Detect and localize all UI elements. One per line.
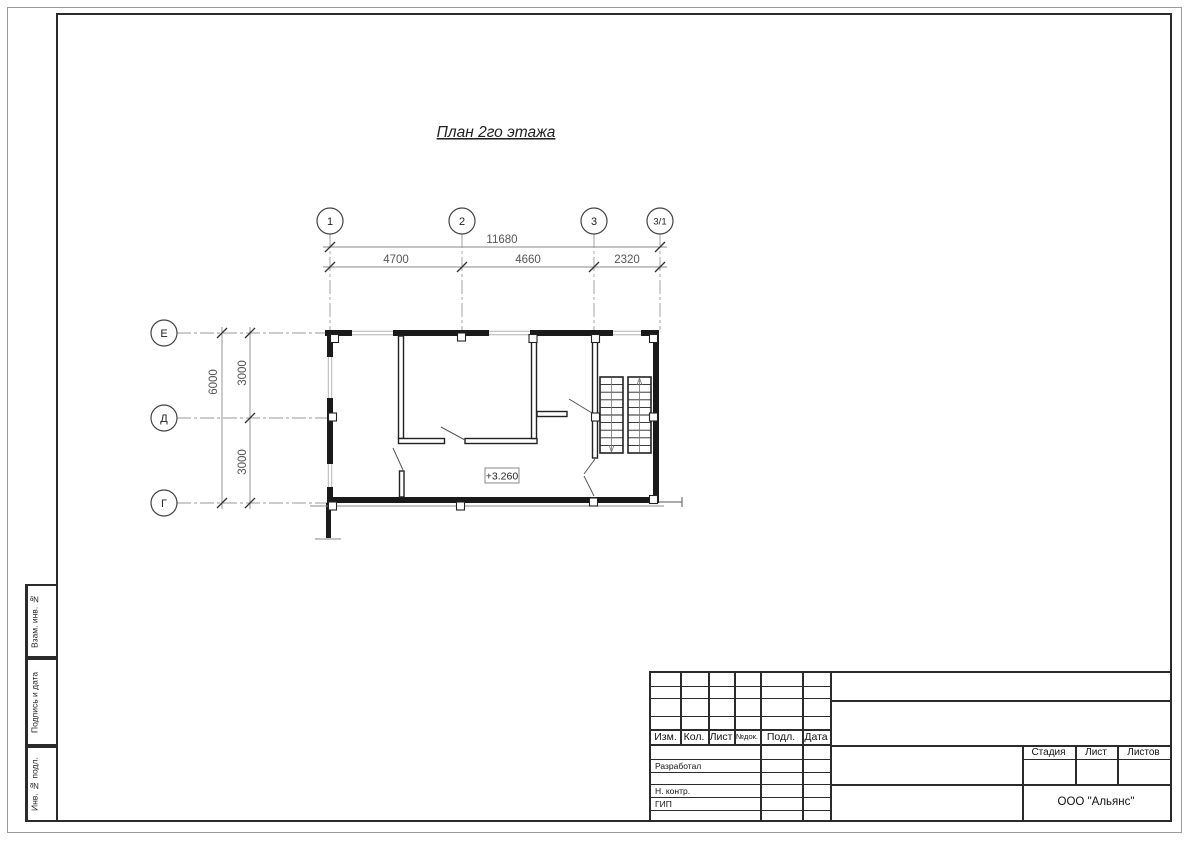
tb-row-razrabotal: Разработал bbox=[651, 759, 759, 772]
axis-label-2: 2 bbox=[459, 216, 465, 228]
lower-outline bbox=[310, 497, 682, 539]
axis-label-g: Г bbox=[161, 498, 167, 510]
dim-top-segment-3: 2320 bbox=[614, 254, 640, 266]
staircase bbox=[600, 377, 651, 453]
tb-col-ndok: №док. bbox=[734, 729, 760, 744]
tb-col-kol: Кол. bbox=[680, 729, 708, 744]
tb-line bbox=[1022, 759, 1170, 760]
sidebar-label-vzam: Взам. инв. № bbox=[27, 586, 41, 656]
dim-left-segment-1: 3000 bbox=[237, 360, 249, 386]
elevation-value: +3.260 bbox=[486, 471, 519, 483]
tb-sheets-label: Листов bbox=[1117, 745, 1170, 759]
dim-top-segment-2: 4660 bbox=[515, 254, 541, 266]
tb-sheet-label: Лист bbox=[1075, 745, 1117, 759]
tb-col-izm: Изм. bbox=[651, 729, 680, 744]
tb-row-gip: ГИП bbox=[651, 797, 759, 810]
drawing-sheet: План 2го этажа bbox=[0, 0, 1191, 842]
title-block: Изм. Кол. Лист №док. Подл. Дата Разработ… bbox=[649, 671, 1172, 822]
axis-label-d: Д bbox=[160, 413, 168, 425]
sidebar-box-podpis: Подпись и дата bbox=[25, 658, 58, 746]
dim-top-segment-1: 4700 bbox=[383, 254, 409, 266]
tb-line bbox=[651, 772, 831, 773]
axis-lines bbox=[177, 234, 660, 503]
drawing-title: План 2го этажа bbox=[437, 124, 556, 141]
tb-col-list: Лист bbox=[708, 729, 734, 744]
tb-line bbox=[651, 744, 831, 746]
tb-line bbox=[651, 698, 831, 699]
tb-line bbox=[651, 686, 831, 687]
tb-row-nkontr: Н. контр. bbox=[651, 784, 759, 797]
tb-stage-label: Стадия bbox=[1022, 745, 1075, 759]
dim-left-segment-2: 3000 bbox=[237, 449, 249, 475]
tb-line bbox=[651, 810, 831, 811]
sidebar-box-inv: Инв. № подл. bbox=[25, 746, 58, 822]
tb-col-podl: Подл. bbox=[760, 729, 802, 744]
axis-label-e: Е bbox=[160, 328, 167, 340]
tb-company: ООО "Альянс" bbox=[1022, 784, 1170, 820]
dim-left-overall: 6000 bbox=[208, 369, 220, 395]
tb-col-data: Дата bbox=[802, 729, 830, 744]
sidebar-label-podpis: Подпись и дата bbox=[27, 660, 41, 744]
dim-top-overall: 11680 bbox=[486, 234, 517, 246]
sidebar-box-vzam: Взам. инв. № bbox=[25, 584, 58, 658]
tb-line bbox=[830, 700, 1170, 702]
elevation-mark: +3.260 bbox=[485, 468, 519, 483]
axis-label-3-1: 3/1 bbox=[653, 217, 666, 228]
axis-label-1: 1 bbox=[327, 216, 333, 228]
tb-line bbox=[651, 716, 831, 717]
axis-label-3: 3 bbox=[591, 216, 597, 228]
sidebar-label-inv: Инв. № подл. bbox=[27, 748, 41, 820]
